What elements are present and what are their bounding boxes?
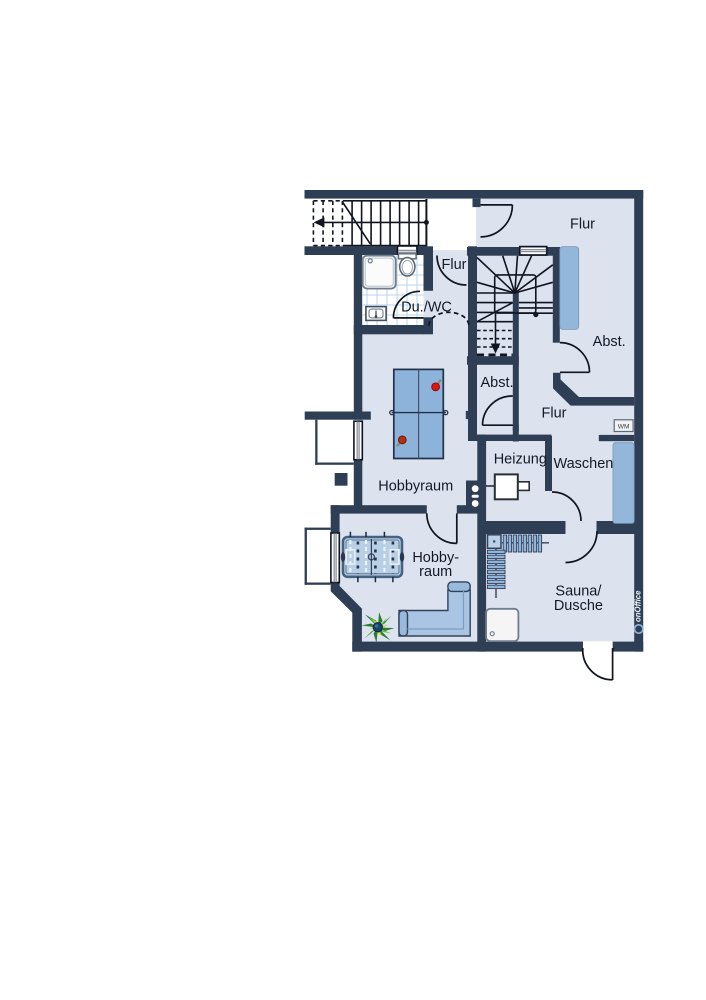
svg-text:onOffice: onOffice <box>634 590 643 622</box>
svg-text:Du./WC: Du./WC <box>401 300 452 316</box>
svg-text:Flur: Flur <box>442 257 467 273</box>
svg-text:Hobbyraum: Hobbyraum <box>378 479 453 495</box>
svg-text:Abst.: Abst. <box>480 375 513 391</box>
svg-text:Flur: Flur <box>542 405 567 421</box>
svg-text:raum: raum <box>419 564 452 580</box>
svg-text:WM: WM <box>618 424 630 431</box>
svg-text:Waschen: Waschen <box>553 456 613 472</box>
svg-text:Dusche: Dusche <box>554 598 603 614</box>
svg-text:Abst.: Abst. <box>593 334 626 350</box>
svg-text:Flur: Flur <box>570 216 595 232</box>
svg-text:Heizung: Heizung <box>494 452 547 468</box>
